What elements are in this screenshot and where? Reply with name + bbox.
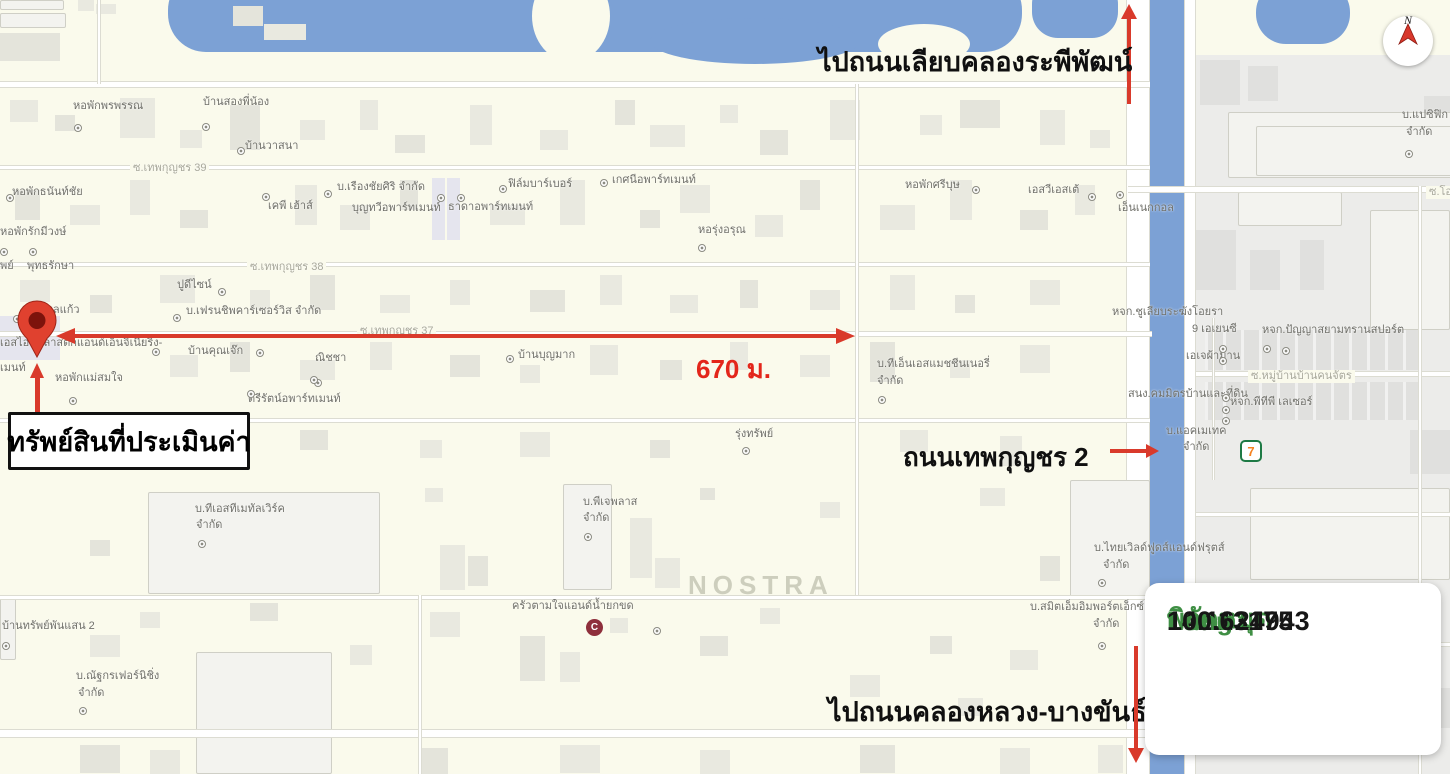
property-pin	[16, 300, 58, 358]
building	[700, 636, 728, 656]
building	[630, 518, 652, 578]
building	[1010, 650, 1038, 670]
building	[820, 502, 840, 518]
building	[700, 750, 730, 774]
building	[520, 636, 545, 681]
building	[130, 180, 150, 215]
property-callout: ทรัพย์สินที่ประเมินค่า	[8, 412, 250, 470]
poi-label: จำกัด	[78, 687, 104, 700]
building	[440, 545, 465, 590]
poi-label: จำกัด	[1406, 126, 1432, 139]
building	[264, 24, 306, 40]
building	[90, 635, 120, 657]
poi-marker	[437, 194, 445, 202]
poi-label: ธาดาอพาร์ทเมนท์	[448, 201, 533, 214]
pin-pointer-head	[30, 363, 44, 378]
poi-label: พย์	[0, 260, 14, 273]
poi-label: เอ็นเนกกอล	[1118, 202, 1174, 215]
building	[10, 100, 38, 122]
water-notch	[532, 0, 610, 62]
building	[650, 125, 685, 147]
top-road-label: ไปถนนเลียบคลองระพีพัฒน์	[818, 40, 1132, 83]
building	[560, 745, 600, 773]
building	[740, 280, 758, 308]
building	[755, 215, 783, 237]
building	[860, 745, 895, 773]
poi-marker	[499, 185, 507, 193]
building	[670, 295, 698, 313]
poi-label: ตรีรัตน์อพาร์ทเมนท์	[248, 393, 341, 406]
poi-label: บ้านสองพี่น้อง	[203, 96, 269, 109]
poi-marker	[198, 540, 206, 548]
road-label: ซ.หมู่บ้านบ้านคนจัตร	[1248, 370, 1355, 383]
building	[430, 612, 460, 637]
long-value: 100.624943	[1167, 606, 1310, 637]
poi-marker	[29, 248, 37, 256]
road	[0, 262, 1150, 267]
poi-label: บ.แปซิฟิก	[1402, 109, 1448, 122]
building-outline	[1070, 480, 1150, 598]
poi-label: ณิชชา	[315, 352, 346, 365]
poi-marker	[324, 190, 332, 198]
poi-label: เกศนีอพาร์ทเมนท์	[612, 174, 696, 187]
poi-label: เอสวีเอสเต้	[1028, 184, 1079, 197]
building	[680, 185, 710, 213]
building	[890, 275, 915, 310]
poi-label: พุทธรักษา	[27, 260, 74, 273]
building	[55, 115, 75, 131]
building	[800, 180, 820, 210]
poi-marker	[173, 314, 181, 322]
poi-marker	[1222, 417, 1230, 425]
road-label: ซ.โอ	[1426, 186, 1450, 199]
poi-marker	[202, 123, 210, 131]
poi-marker	[742, 447, 750, 455]
poi-label: เมนท์	[0, 362, 26, 375]
building	[1410, 430, 1450, 474]
building-outline	[0, 0, 64, 10]
coordinates-box: พิกัดหมุด Lat : 14.113175 Long : 100.624…	[1145, 583, 1441, 755]
poi-marker	[152, 348, 160, 356]
building	[470, 105, 492, 145]
road-label: ซ.เทพกุญชร 38	[247, 261, 326, 274]
building	[1200, 60, 1240, 105]
poi-marker	[0, 248, 8, 256]
building	[420, 748, 448, 774]
road	[97, 0, 101, 84]
poi-marker	[878, 396, 886, 404]
building	[530, 290, 565, 312]
building	[1040, 556, 1060, 581]
poi-marker	[457, 194, 465, 202]
building	[0, 33, 60, 61]
poi-label: หอพักแม่สมใจ	[55, 372, 123, 385]
poi-label: บ้านบุญมาก	[518, 349, 575, 362]
poi-label: หอพักรักมีวงษ์	[0, 226, 66, 239]
poi-marker	[653, 627, 661, 635]
poi-marker	[1098, 642, 1106, 650]
poi-marker	[1405, 150, 1413, 158]
poi-label: ฟิล์มบาร์เบอร์	[508, 178, 572, 191]
poi-label: หอพักพรพรรณ	[73, 100, 143, 113]
building	[1030, 280, 1060, 305]
building	[810, 290, 840, 310]
compass-icon: N	[1383, 16, 1433, 66]
building	[70, 205, 100, 225]
poi-label: บ.พีเจพลาส	[583, 496, 637, 509]
top-arrow-head	[1121, 4, 1137, 19]
poi-label: ปูดีไซน์	[177, 279, 212, 292]
distance-arrow-shaft	[74, 334, 836, 338]
building	[1300, 240, 1324, 290]
poi-label: จำกัด	[1093, 618, 1119, 631]
building	[140, 612, 160, 628]
distance-arrow-right-head	[836, 328, 855, 344]
building	[760, 608, 780, 624]
poi-label: จำกัด	[196, 519, 222, 532]
poi-label: บ.ไทยเวิลด์ฟูดส์แอนด์ฟรุตส์	[1094, 542, 1225, 555]
building	[520, 432, 550, 457]
poi-label: ครัวตามใจแอนด์น้ำยกขด	[512, 600, 634, 613]
building	[700, 488, 715, 500]
building	[300, 120, 325, 140]
building	[180, 210, 208, 228]
building	[655, 558, 680, 588]
poi-label: 9 เอเยนซี	[1192, 323, 1237, 336]
building	[380, 295, 410, 313]
poi-label: บ.แอคเมเทค	[1166, 425, 1226, 438]
building	[960, 100, 1000, 128]
building	[540, 130, 568, 150]
poi-marker	[698, 244, 706, 252]
poi-marker	[1282, 347, 1290, 355]
building	[1250, 250, 1280, 290]
distance-arrow-left-head	[56, 328, 75, 344]
building	[450, 355, 480, 377]
building	[600, 275, 622, 305]
building	[920, 115, 942, 135]
water-body	[1256, 0, 1350, 44]
building	[1040, 110, 1065, 145]
poi-label: หอพักธนันท์ชัย	[12, 186, 83, 199]
building	[150, 750, 180, 774]
building	[450, 280, 470, 305]
building	[300, 430, 328, 450]
building	[980, 488, 1005, 506]
map-watermark: NOSTRA	[688, 570, 834, 601]
building	[180, 130, 202, 148]
building	[370, 342, 392, 370]
building	[720, 105, 738, 123]
poi-marker	[1222, 406, 1230, 414]
poi-label: หอรุ่งอรุณ	[698, 224, 746, 237]
building	[90, 295, 112, 313]
road	[1196, 512, 1450, 517]
poi-marker	[584, 533, 592, 541]
poi-marker	[310, 376, 318, 384]
compass-north-letter: N	[1404, 13, 1412, 28]
building	[468, 556, 488, 586]
side-road-label: ถนนเทพกุญชร 2	[903, 437, 1089, 478]
poi-label: จำกัด	[583, 512, 609, 525]
building	[520, 365, 540, 383]
building	[420, 440, 442, 458]
shop-logo-icon: C	[586, 619, 603, 636]
building	[20, 280, 50, 302]
bottom-arrow-shaft	[1134, 646, 1138, 748]
building	[360, 100, 378, 130]
building	[1196, 230, 1236, 290]
building	[590, 345, 618, 375]
poi-label: บ้านคุณเจ๊ก	[188, 345, 243, 358]
poi-marker	[1219, 345, 1227, 353]
poi-label: จำกัด	[877, 375, 903, 388]
poi-marker	[218, 288, 226, 296]
poi-marker	[6, 194, 14, 202]
building-outline	[196, 652, 332, 774]
poi-marker	[1222, 394, 1230, 402]
building	[640, 210, 660, 228]
building	[760, 130, 788, 155]
building-outline	[1370, 210, 1450, 330]
building-outline	[0, 13, 66, 28]
poi-label: หจก.ปัญญาสยามทรานสปอร์ต	[1262, 324, 1404, 337]
poi-label: จำกัด	[1103, 559, 1129, 572]
poi-marker	[79, 707, 87, 715]
road-label: ซ.เทพกุญชร 39	[130, 162, 209, 175]
poi-label: เอเจผ้าม่าน	[1186, 350, 1240, 363]
building	[250, 603, 278, 621]
side-road-arrow-head	[1146, 444, 1159, 458]
poi-label: บ้านวาสนา	[245, 140, 298, 153]
building	[650, 440, 670, 458]
building	[560, 652, 580, 682]
poi-marker	[506, 355, 514, 363]
seven-eleven-icon: 7	[1240, 440, 1262, 462]
building	[80, 745, 120, 773]
poi-label: บ้านทรัพย์พันแสน 2	[2, 620, 95, 633]
poi-label: บุญทวีอพาร์ทเมนท์	[352, 202, 441, 215]
building	[350, 645, 372, 665]
building	[425, 488, 443, 502]
poi-marker	[256, 349, 264, 357]
water-body	[1032, 0, 1118, 38]
poi-label: หจก.ชูเลียบระฆังโอยรา	[1112, 306, 1223, 319]
poi-label: บ.ทีเอสทีเมทัลเวิร์ค	[195, 503, 285, 516]
building	[1098, 745, 1123, 773]
poi-marker	[1116, 191, 1124, 199]
map-canvas[interactable]: NOSTRA หอพักพรพรรณบ้านสองพี่น้องบ้านวาสน…	[0, 0, 1450, 774]
poi-marker	[1219, 357, 1227, 365]
poi-label: บ.เรืองชัยศิริ จำกัด	[337, 181, 425, 194]
poi-marker	[69, 397, 77, 405]
building	[170, 355, 198, 377]
building	[1000, 748, 1030, 774]
poi-label: หอพักศรีบุษ	[905, 179, 960, 192]
poi-marker	[1098, 579, 1106, 587]
road	[418, 595, 422, 774]
building	[90, 540, 110, 556]
distance-label: 670 ม.	[696, 349, 771, 390]
poi-label: บ.สมิตเอ็มอิมพอร์ตเอ็กซ์	[1030, 601, 1144, 614]
side-road-arrow-shaft	[1110, 449, 1146, 453]
poi-label: จำกัด	[1183, 441, 1209, 454]
building	[233, 6, 263, 26]
poi-marker	[262, 193, 270, 201]
building	[615, 100, 635, 125]
poi-label: หจก.พีทีพี เลเซอร์	[1230, 396, 1312, 409]
building	[1020, 210, 1048, 230]
shop-logo-glyph: C	[591, 622, 598, 633]
building	[880, 205, 915, 230]
building	[1248, 66, 1278, 101]
seven-eleven-glyph: 7	[1247, 444, 1254, 459]
building	[955, 295, 975, 313]
poi-marker	[2, 642, 10, 650]
pin-pointer-shaft	[35, 378, 40, 414]
building	[1020, 345, 1050, 373]
road	[855, 84, 859, 595]
poi-marker	[237, 147, 245, 155]
bottom-road-label: ไปถนนคลองหลวง-บางขันธ์	[828, 690, 1147, 733]
poi-marker	[1263, 345, 1271, 353]
building	[78, 0, 94, 11]
bottom-arrow-head	[1128, 748, 1144, 763]
poi-marker	[972, 186, 980, 194]
poi-label: บ.ทีเอ็นเอสแมชชีนเนอรี่	[877, 358, 990, 371]
building-outline	[1238, 192, 1342, 226]
poi-marker	[1088, 193, 1096, 201]
building	[800, 355, 830, 377]
building	[610, 618, 628, 633]
poi-label: บ.ณัฐกรเฟอร์นิชิ่ง	[76, 670, 159, 683]
poi-marker	[247, 390, 255, 398]
poi-label: เคพี เฮ้าส์	[268, 200, 313, 213]
poi-label: รุ่งทรัพย์	[735, 428, 773, 441]
poi-marker	[600, 179, 608, 187]
building	[1090, 130, 1110, 148]
property-callout-label: ทรัพย์สินที่ประเมินค่า	[7, 420, 251, 463]
poi-label: บ.เฟรนชิพคาร์เซอร์วิส จำกัด	[186, 305, 321, 318]
building	[930, 636, 952, 654]
poi-marker	[74, 124, 82, 132]
building	[660, 360, 682, 380]
road	[1128, 186, 1450, 193]
building	[395, 135, 425, 153]
